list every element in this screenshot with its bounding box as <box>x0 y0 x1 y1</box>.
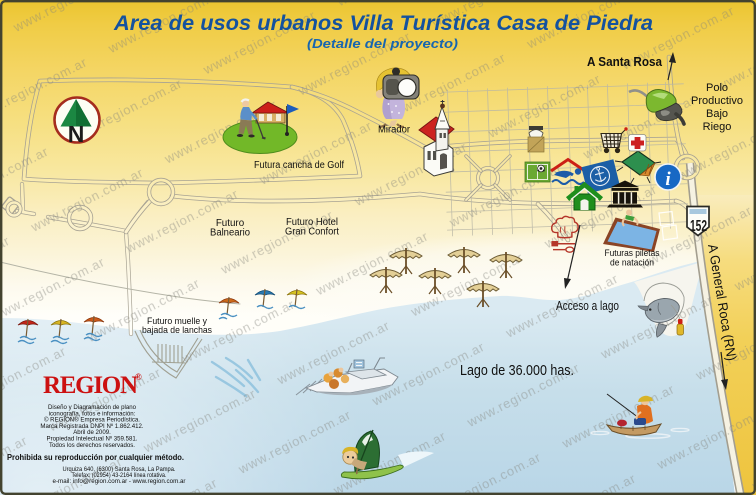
svg-text:Mirador: Mirador <box>378 125 411 136</box>
svg-text:Polo: Polo <box>706 82 728 94</box>
svg-text:®: ® <box>135 372 142 382</box>
svg-text:de natación: de natación <box>610 258 654 269</box>
svg-text:Riego: Riego <box>703 121 732 133</box>
svg-text:Productivo: Productivo <box>691 95 743 107</box>
svg-text:N: N <box>68 121 85 147</box>
svg-text:Area de usos urbanos Villa Tur: Area de usos urbanos Villa Turística Cas… <box>113 11 653 35</box>
svg-text:i: i <box>665 169 671 190</box>
svg-text:REGION: REGION <box>43 372 139 399</box>
svg-text:Futura cancha de Golf: Futura cancha de Golf <box>254 160 344 171</box>
svg-text:Todos los derechos reservados.: Todos los derechos reservados. <box>49 442 135 449</box>
svg-text:(Detalle del proyecto): (Detalle del proyecto) <box>307 36 458 51</box>
svg-text:Gran Confort: Gran Confort <box>285 227 339 238</box>
svg-text:bajada de lanchas: bajada de lanchas <box>142 325 212 336</box>
svg-text:Bajo: Bajo <box>706 108 728 120</box>
svg-text:Lago de 36.000 has.: Lago de 36.000 has. <box>460 362 574 379</box>
svg-text:A Santa Rosa: A Santa Rosa <box>587 54 663 69</box>
svg-text:e-mail: info@region.com.ar -: e-mail: info@region.com.ar - www.region.… <box>53 478 186 485</box>
svg-text:Prohibida su reproducción por: Prohibida su reproducción por cualquier … <box>7 452 184 462</box>
svg-text:152: 152 <box>690 218 707 235</box>
svg-text:Acceso a lago: Acceso a lago <box>556 299 619 313</box>
svg-text:Balneario: Balneario <box>210 228 251 239</box>
